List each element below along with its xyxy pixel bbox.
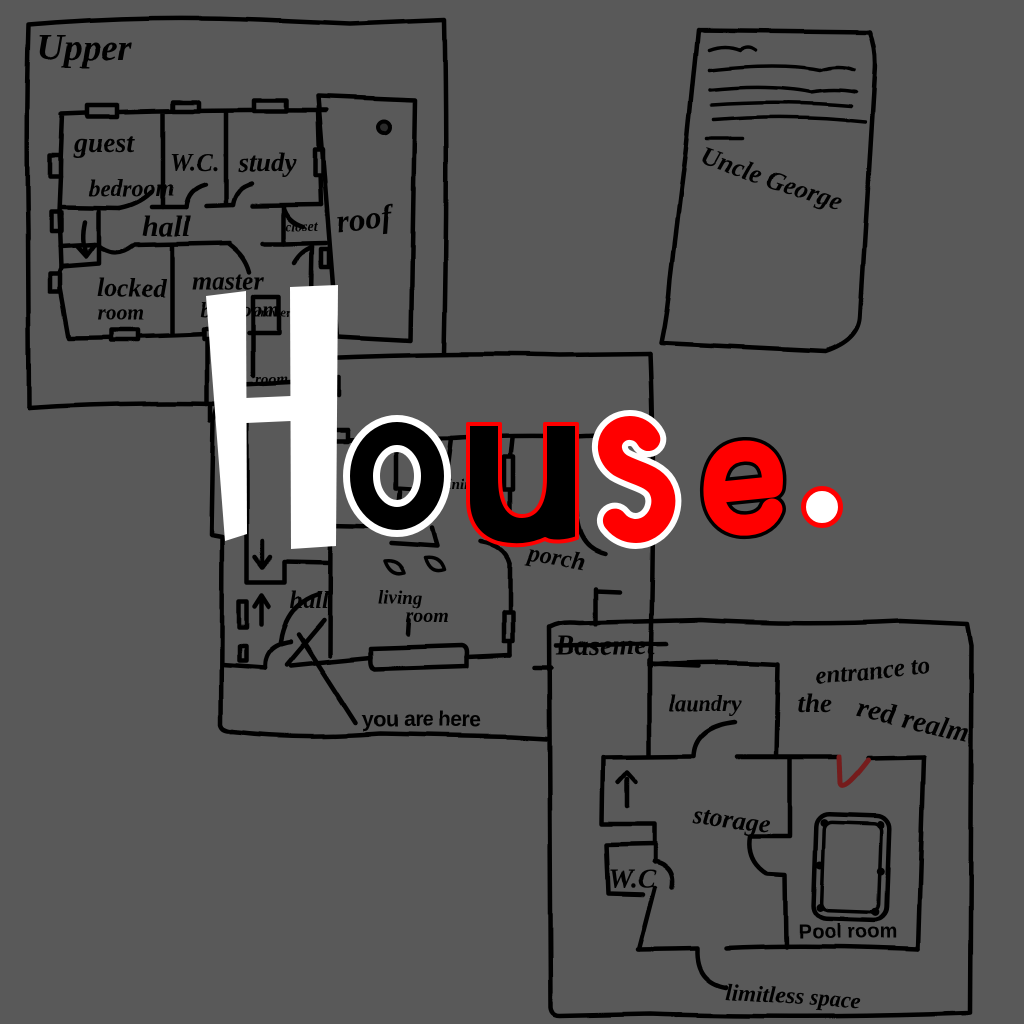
- svg-text:room: room: [97, 300, 145, 325]
- svg-text:the: the: [797, 689, 832, 719]
- svg-text:Upper: Upper: [37, 28, 132, 69]
- svg-text:bedroom: bedroom: [88, 176, 175, 202]
- svg-text:study: study: [237, 148, 298, 178]
- svg-text:room: room: [406, 605, 449, 627]
- svg-text:closet: closet: [285, 220, 319, 235]
- svg-text:W.C: W.C: [609, 864, 657, 894]
- svg-text:locked: locked: [97, 274, 167, 303]
- svg-text:roof: roof: [335, 197, 397, 239]
- svg-text:hall: hall: [142, 210, 191, 243]
- svg-text:you are here: you are here: [362, 709, 481, 732]
- svg-text:guest: guest: [73, 128, 136, 159]
- svg-text:W.C.: W.C.: [170, 149, 220, 176]
- svg-text:Pool room: Pool room: [798, 921, 897, 943]
- svg-text:laundry: laundry: [668, 691, 743, 716]
- svg-text:master: master: [192, 266, 265, 295]
